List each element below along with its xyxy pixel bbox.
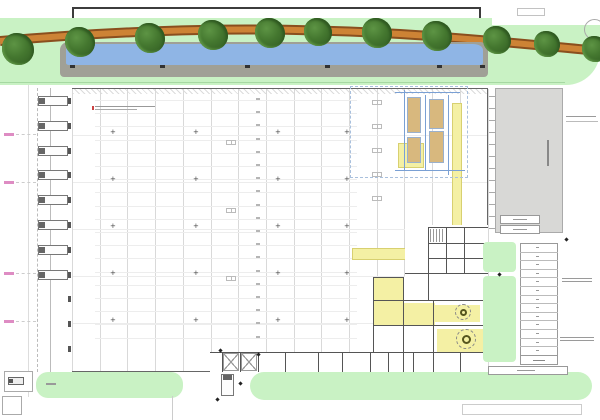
dock-ramp-icon	[241, 353, 257, 371]
mini-truck-icon	[8, 377, 24, 385]
rack-line	[95, 298, 357, 299]
plot-outline-bar	[462, 404, 582, 415]
truck-cab	[39, 197, 45, 203]
bike-shed-bar	[488, 366, 568, 375]
grid-line	[72, 89, 73, 371]
vent-symbol-icon	[226, 276, 236, 281]
tree-icon	[362, 18, 392, 48]
vent-symbol-divider	[377, 197, 378, 200]
grid-line	[100, 89, 101, 371]
column-marker-icon: +	[344, 223, 350, 230]
paved-truck-yard	[495, 88, 563, 233]
truck-icon	[38, 170, 68, 180]
rack-line	[95, 245, 357, 246]
bike-shed-bar-label	[517, 370, 535, 371]
canal-dim-tick	[437, 65, 442, 68]
truck-icon	[38, 121, 68, 131]
facade-tick	[489, 216, 495, 217]
vent-symbol-icon	[226, 208, 236, 213]
truck-cab	[39, 222, 45, 228]
marker-dot-icon	[215, 397, 219, 401]
yard-label-bar	[513, 219, 527, 220]
tree-icon	[483, 26, 511, 54]
wall	[460, 352, 461, 372]
rack-dim-tick	[256, 124, 260, 126]
rack-line	[95, 311, 357, 312]
column-marker-icon: +	[344, 270, 350, 277]
canal-dim-tick	[160, 65, 165, 68]
truck-cab	[223, 375, 232, 380]
wall	[342, 352, 343, 372]
conference-table-ring	[462, 335, 471, 344]
grid-line	[294, 89, 295, 371]
grid-line	[211, 89, 212, 371]
column-marker-icon: +	[110, 223, 116, 230]
dock-bumper	[68, 247, 71, 253]
wall	[373, 277, 403, 278]
tree-icon	[304, 18, 332, 46]
column-marker-icon: +	[193, 176, 199, 183]
leader-dash-line	[16, 273, 36, 274]
parking-stall-number	[536, 316, 539, 317]
wall	[370, 352, 371, 372]
parking-stall-divider	[520, 312, 558, 313]
truck-cab	[39, 123, 45, 129]
column-marker-icon: +	[275, 223, 281, 230]
rack-dim-tick	[256, 98, 260, 100]
note-line	[95, 109, 137, 110]
wall	[222, 352, 223, 372]
rack-line	[95, 272, 357, 273]
annotation-text-bar	[560, 340, 594, 341]
parking-stall-number	[536, 247, 539, 248]
parking-stall-divider	[520, 320, 558, 321]
truck-icon	[38, 270, 68, 280]
parking-stall-number	[536, 290, 539, 291]
wall	[433, 352, 434, 372]
parking-stall-divider	[520, 269, 558, 270]
dim-line	[172, 396, 173, 420]
annotation-leader-line	[566, 121, 598, 122]
conference-table-icon	[455, 304, 471, 320]
rack-line	[95, 192, 357, 193]
note-tick	[92, 106, 94, 110]
vent-symbol-divider	[231, 209, 232, 212]
rack-line	[95, 338, 357, 339]
yard-label-bar	[513, 229, 527, 230]
rack-dim-tick	[256, 296, 260, 298]
yard-text-bar	[547, 140, 549, 166]
truck-icon	[38, 220, 68, 230]
dock-bumper	[68, 296, 71, 302]
rack-line	[95, 219, 357, 220]
dock-bumper	[68, 272, 71, 278]
rack-line	[95, 206, 357, 207]
truck-icon	[38, 245, 68, 255]
vent-symbol-icon	[226, 140, 236, 145]
tree-icon	[198, 20, 228, 50]
yard-label-box	[500, 215, 540, 224]
grid-line	[266, 89, 267, 371]
parking-stall-number	[536, 264, 539, 265]
leader-dash-line	[16, 134, 36, 135]
rack-dim-tick	[256, 270, 260, 272]
vent-symbol-icon	[372, 196, 382, 201]
column-marker-icon: +	[193, 270, 199, 277]
column-marker-icon: +	[344, 129, 350, 136]
column-marker-icon: +	[275, 129, 281, 136]
facade-tick	[489, 144, 495, 145]
dock-bumper	[68, 222, 71, 228]
parking-stall-divider	[520, 303, 558, 304]
wall	[413, 352, 414, 372]
parking-stall-number	[536, 281, 539, 282]
conference-table-icon	[456, 329, 476, 349]
column-marker-icon: +	[110, 270, 116, 277]
parking-stall-number	[536, 350, 539, 351]
annotation-text-bar	[566, 116, 596, 117]
rack-dim-tick	[256, 151, 260, 153]
parking-stall-divider	[520, 346, 558, 347]
rack-dim-tick	[256, 243, 260, 245]
dock-bumper	[68, 123, 71, 129]
truck-icon	[38, 195, 68, 205]
wall	[428, 227, 429, 300]
canal-dim-tick	[325, 65, 330, 68]
rack-line	[95, 232, 357, 233]
column-marker-icon: +	[275, 270, 281, 277]
facade-tick	[489, 132, 495, 133]
wall	[428, 243, 488, 244]
green-strip	[36, 372, 183, 398]
column-marker-icon: +	[193, 223, 199, 230]
equipment-zone-outline	[350, 86, 468, 178]
rack-dim-tick	[256, 230, 260, 232]
parking-stall-number	[536, 324, 539, 325]
tree-icon	[534, 31, 560, 57]
truck-cab	[39, 148, 45, 154]
truck-cab	[39, 98, 45, 104]
parking-total-bar	[533, 360, 545, 361]
parking-stall-number	[536, 333, 539, 334]
green-strip	[250, 372, 592, 400]
rack-line	[95, 126, 357, 127]
tree-icon	[2, 33, 34, 65]
parking-stall-divider	[520, 252, 558, 253]
tree-icon	[135, 23, 165, 53]
wall	[403, 352, 404, 372]
dimension-bracket-tick-right	[479, 7, 481, 18]
column-marker-icon: +	[193, 129, 199, 136]
rack-line	[95, 324, 357, 325]
conference-table-ring	[460, 309, 467, 316]
dock-bumper	[68, 346, 71, 352]
parking-stall-number	[536, 256, 539, 257]
canal-dim-tick	[245, 65, 250, 68]
parking-stall-number	[536, 299, 539, 300]
title-label-box	[517, 8, 545, 16]
rack-line	[95, 153, 357, 154]
wall	[210, 352, 488, 353]
rack-line	[95, 166, 357, 167]
grid-line	[183, 89, 184, 371]
wall	[388, 352, 389, 372]
level-label	[4, 133, 14, 136]
rack-dim-tick	[256, 217, 260, 219]
facade-tick	[489, 192, 495, 193]
rack-dim-tick	[256, 322, 260, 324]
wall	[446, 227, 447, 273]
marker-dot-icon	[564, 237, 568, 241]
rack-dim-tick	[256, 138, 260, 140]
grid-line	[127, 89, 128, 371]
site-plan: ++++++++++++++++++++	[0, 0, 600, 420]
annotation-text-bar	[562, 281, 592, 282]
truck-icon	[38, 96, 68, 106]
gatehouse-box	[2, 396, 22, 415]
facade-tick	[489, 180, 495, 181]
level-label	[4, 272, 14, 275]
truck-cab	[39, 272, 45, 278]
office-highlight-room	[373, 303, 435, 325]
rack-dim-tick	[256, 336, 260, 338]
truck-cab	[39, 247, 45, 253]
dock-ramp-icon	[223, 353, 239, 371]
truck-cab	[9, 379, 13, 383]
parking-stall-number	[536, 307, 539, 308]
note-line	[95, 106, 155, 107]
dock-bumper	[68, 98, 71, 104]
wall	[318, 352, 319, 372]
rack-dim-tick	[256, 309, 260, 311]
vent-symbol-divider	[231, 277, 232, 280]
wall	[373, 300, 488, 301]
facade-tick	[489, 204, 495, 205]
truck-icon	[38, 146, 68, 156]
grid-line	[238, 89, 239, 371]
gate-label-bar	[46, 383, 56, 385]
column-marker-icon: +	[344, 317, 350, 324]
rack-dim-tick	[256, 164, 260, 166]
rack-dim-tick	[256, 283, 260, 285]
rack-dim-tick	[256, 256, 260, 258]
wall	[428, 227, 488, 228]
column-marker-icon: +	[275, 176, 281, 183]
rack-line	[95, 258, 357, 259]
dimension-bracket	[72, 7, 481, 9]
parking-stall-number	[536, 342, 539, 343]
grid-line	[321, 89, 322, 371]
yard-label-box	[500, 225, 540, 234]
truck-icon-south	[221, 374, 234, 396]
facade-tick	[489, 156, 495, 157]
dock-bumper	[68, 197, 71, 203]
rack-dim-tick	[256, 177, 260, 179]
truck-cab	[39, 172, 45, 178]
green-strip	[483, 276, 516, 362]
wall	[373, 277, 374, 352]
tree-icon	[422, 21, 452, 51]
site-edge-line	[28, 85, 29, 397]
dimension-bracket-tick-left	[72, 7, 74, 18]
rack-dim-tick	[256, 190, 260, 192]
rack-dim-tick	[256, 111, 260, 113]
facade-tick	[489, 108, 495, 109]
wall	[464, 227, 465, 273]
rack-line	[95, 100, 357, 101]
parking-stall-divider	[520, 286, 558, 287]
column-marker-icon: +	[110, 129, 116, 136]
parking-stall-divider	[520, 295, 558, 296]
rack-dim-tick	[256, 204, 260, 206]
dock-bumper	[68, 148, 71, 154]
wall	[403, 277, 404, 352]
level-label	[4, 320, 14, 323]
parking-total-box	[520, 355, 558, 365]
parking-stall-divider	[520, 329, 558, 330]
rack-line	[95, 113, 357, 114]
canal-dim-tick	[480, 65, 485, 68]
grid-line	[155, 89, 156, 371]
canal-dim-tick	[70, 65, 75, 68]
marker-dot-icon	[238, 381, 242, 385]
footpath-line	[0, 82, 565, 83]
dock-bumper	[68, 172, 71, 178]
tree-icon	[65, 27, 95, 57]
parking-stall-divider	[520, 277, 558, 278]
facade-tick	[489, 120, 495, 121]
vent-symbol-divider	[231, 141, 232, 144]
leader-dash-line	[16, 182, 36, 183]
wall	[428, 258, 488, 259]
leader-dash-line	[16, 321, 36, 322]
facade-tick	[489, 96, 495, 97]
facade-tick	[489, 168, 495, 169]
wall	[373, 325, 488, 326]
rack-line	[95, 179, 357, 180]
column-marker-icon: +	[275, 317, 281, 324]
annotation-text-bar	[562, 278, 592, 279]
dock-bumper	[68, 321, 71, 327]
facade-tick	[489, 228, 495, 229]
parking-stall-divider	[520, 260, 558, 261]
column-marker-icon: +	[344, 176, 350, 183]
column-marker-icon: +	[193, 317, 199, 324]
stair-icon	[430, 229, 444, 242]
column-marker-icon: +	[110, 176, 116, 183]
level-label	[4, 181, 14, 184]
parking-stall-number	[536, 273, 539, 274]
wall	[405, 273, 488, 274]
column-marker-icon: +	[110, 317, 116, 324]
parking-stall-divider	[520, 338, 558, 339]
wall	[285, 352, 286, 372]
annotation-text-bar	[560, 337, 594, 338]
green-strip	[483, 242, 516, 272]
tree-icon	[255, 18, 285, 48]
rack-line	[95, 285, 357, 286]
wall	[240, 352, 241, 372]
